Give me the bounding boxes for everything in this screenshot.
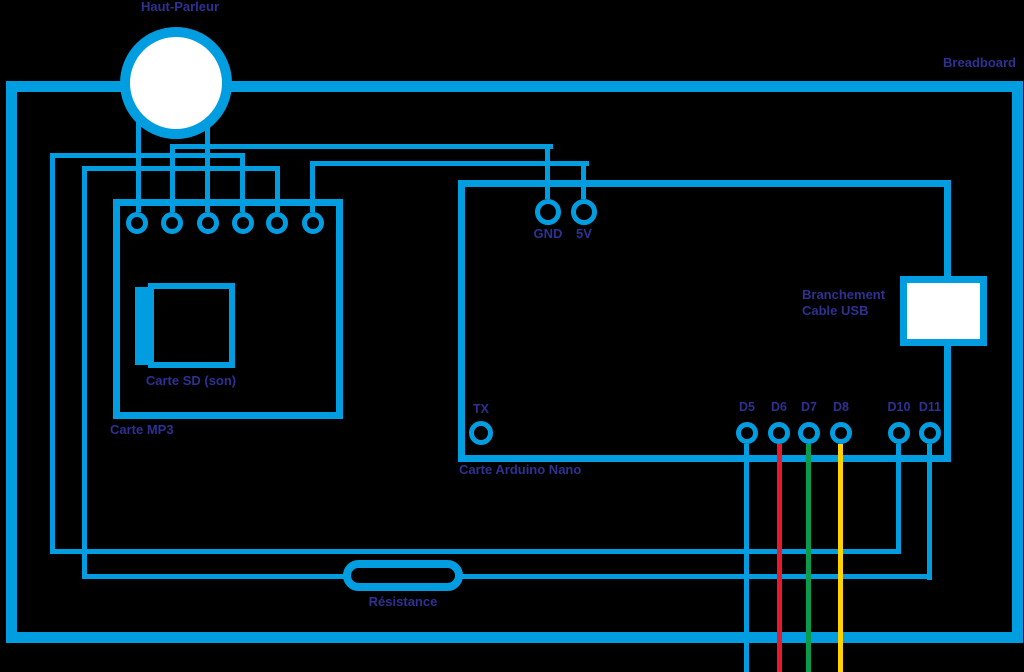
mp3-pin-4 xyxy=(232,212,254,234)
arduino-label: Carte Arduino Nano xyxy=(459,463,581,477)
wire-d7-green xyxy=(806,444,811,672)
mp3-pin-5 xyxy=(266,212,288,234)
mp3-pin-6 xyxy=(302,212,324,234)
usb-connector xyxy=(900,276,987,346)
resistor xyxy=(343,560,463,591)
resistor-label: Résistance xyxy=(343,595,463,609)
arduino-5v-pin xyxy=(571,199,597,225)
breadboard-label: Breadboard xyxy=(896,56,1016,70)
wire-mp3pin4-left-h xyxy=(50,153,245,158)
sd-card-contact-strip xyxy=(135,287,149,365)
wire-left-vertical-outer xyxy=(50,153,55,554)
wire-mp3pin6-to-5v-h xyxy=(310,161,589,166)
usb-label-line2: Cable USB xyxy=(802,303,897,319)
wire-d11-down xyxy=(927,444,932,580)
arduino-d7-pin xyxy=(798,422,820,444)
arduino-board-outline xyxy=(458,180,951,462)
usb-label: Branchement Cable USB xyxy=(802,287,897,319)
wire-d5-blue xyxy=(744,444,749,672)
arduino-d8-pin xyxy=(830,422,852,444)
wire-mp3pin5-left-h xyxy=(82,166,280,171)
wire-d8-yellow xyxy=(838,444,843,672)
arduino-gnd-pin xyxy=(535,199,561,225)
wire-resistor-to-d11-h xyxy=(459,574,932,579)
mp3-pin-3 xyxy=(197,212,219,234)
wire-to-resistor-left-h xyxy=(82,574,347,579)
d8-label: D8 xyxy=(821,400,861,414)
wire-left-vertical-inner xyxy=(82,166,87,579)
sd-label: Carte SD (son) xyxy=(121,374,261,388)
arduino-d6-pin xyxy=(768,422,790,444)
wire-bottom-to-d10-h xyxy=(50,549,901,554)
arduino-d5-pin xyxy=(736,422,758,444)
arduino-d10-pin xyxy=(888,422,910,444)
speaker xyxy=(120,27,232,139)
5v-label: 5V xyxy=(559,227,609,241)
wire-mp3pin2-to-gnd-h xyxy=(170,144,553,149)
mp3-label: Carte MP3 xyxy=(110,423,174,437)
d11-label: D11 xyxy=(910,400,950,414)
mp3-pin-1 xyxy=(126,212,148,234)
arduino-tx-pin xyxy=(469,421,493,445)
arduino-d11-pin xyxy=(919,422,941,444)
tx-label: TX xyxy=(461,402,501,416)
speaker-label: Haut-Parleur xyxy=(110,0,250,14)
sd-card-outline xyxy=(148,283,235,368)
wire-d6-red xyxy=(777,444,782,672)
usb-label-line1: Branchement xyxy=(802,287,897,303)
circuit-diagram: Haut-Parleur Breadboard GND 5V TX D5 D6 … xyxy=(0,0,1024,672)
mp3-pin-2 xyxy=(161,212,183,234)
